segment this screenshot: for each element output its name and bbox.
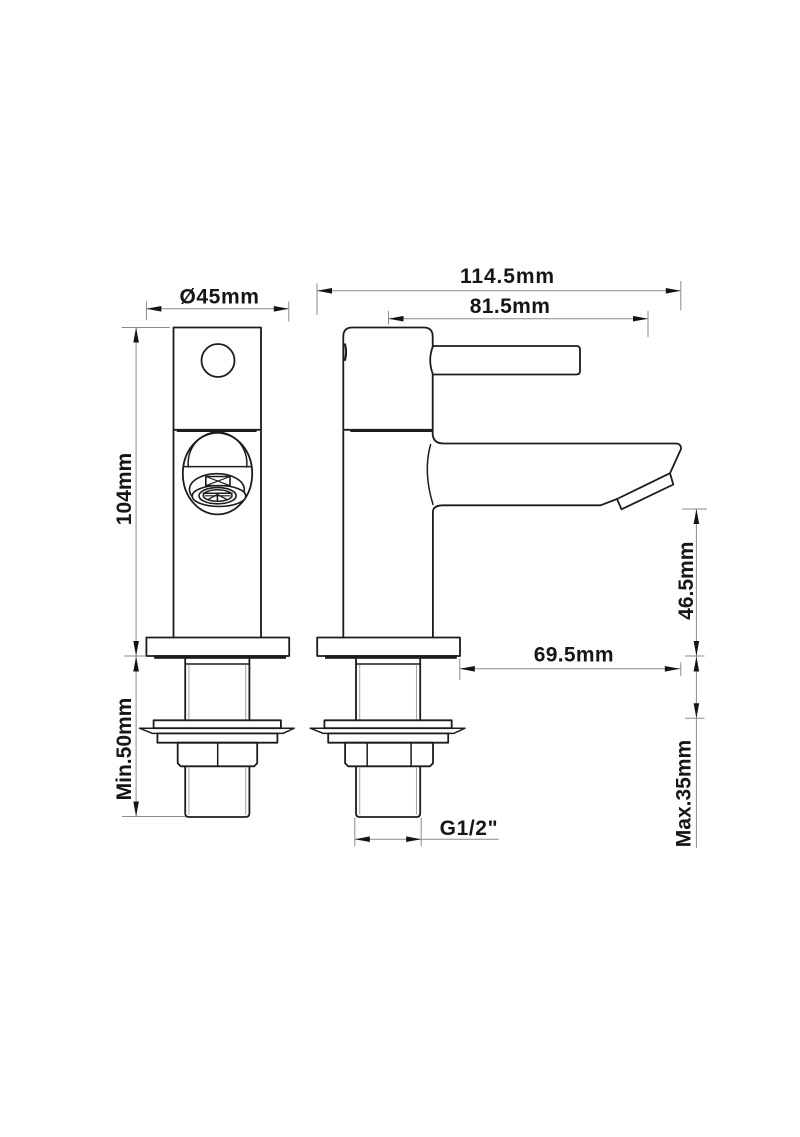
svg-text:G1/2": G1/2" [440,817,498,840]
svg-text:69.5mm: 69.5mm [534,644,614,667]
svg-text:114.5mm: 114.5mm [460,265,555,288]
svg-text:Min.50mm: Min.50mm [113,698,136,801]
svg-text:46.5mm: 46.5mm [675,542,698,620]
svg-text:Max.35mm: Max.35mm [673,740,696,847]
svg-text:Ø45mm: Ø45mm [179,285,259,308]
svg-text:81.5mm: 81.5mm [470,295,551,318]
svg-text:104mm: 104mm [113,453,136,525]
